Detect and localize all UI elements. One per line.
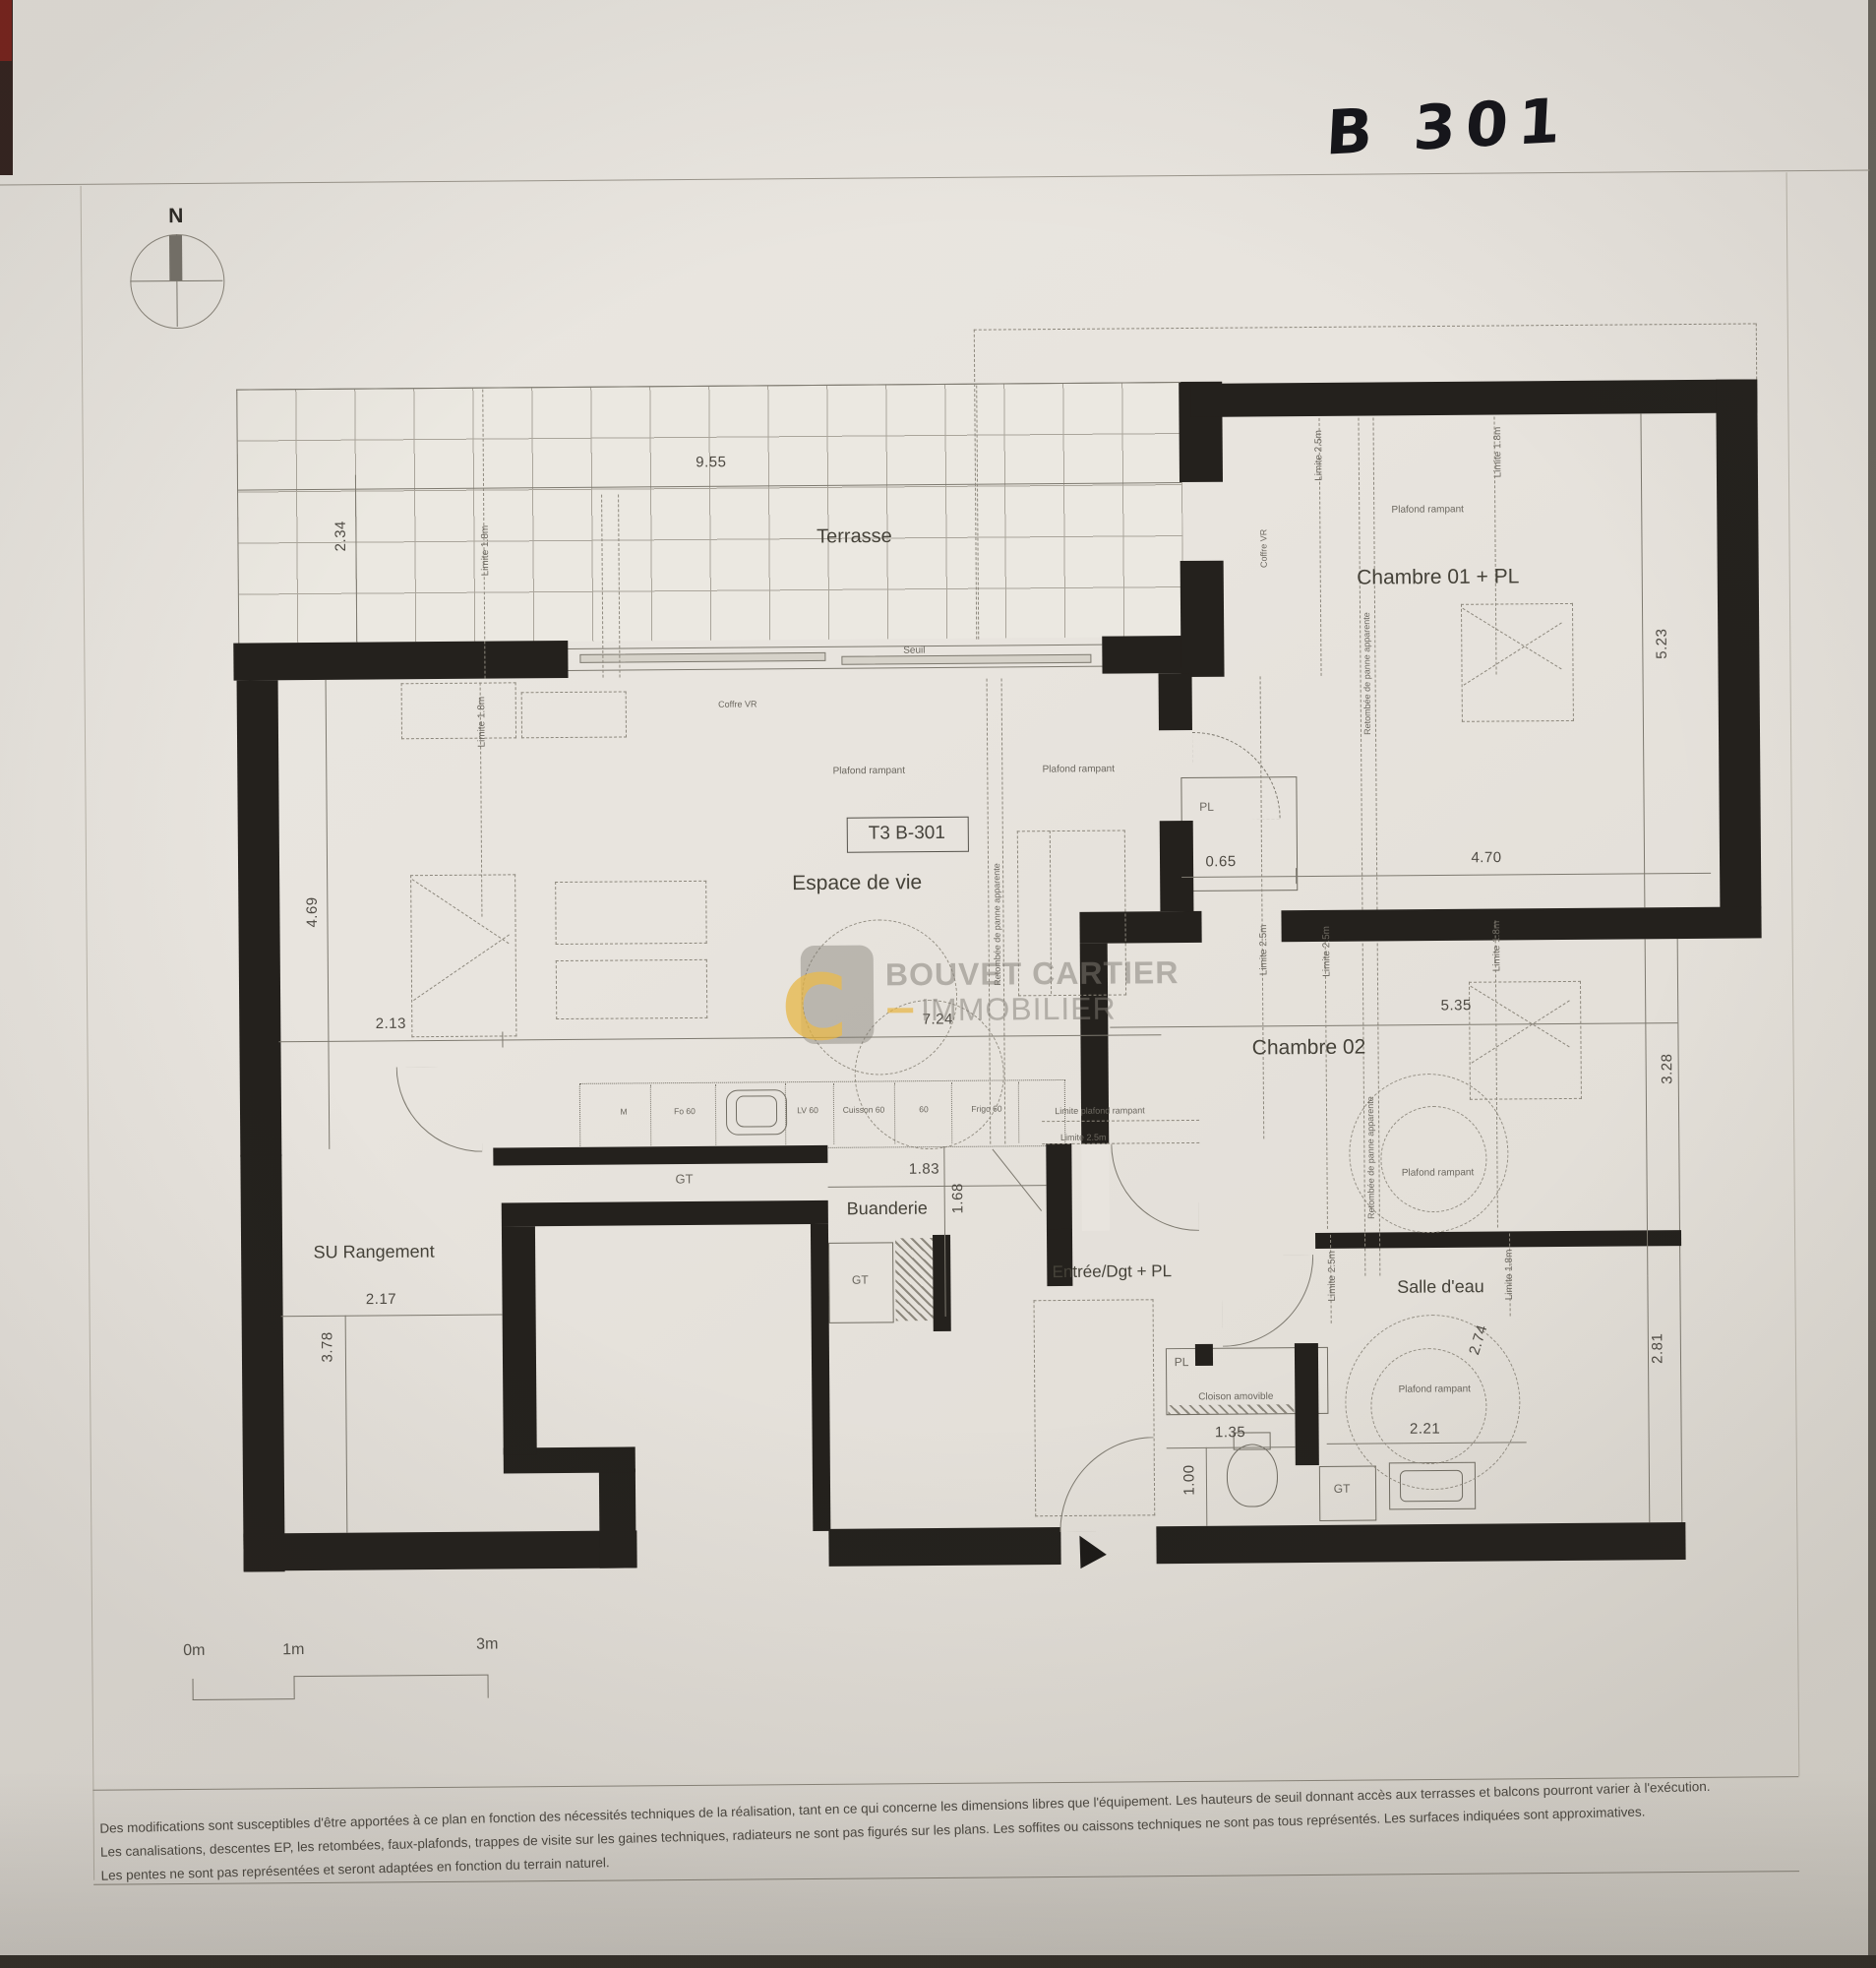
dimension-line — [1110, 1022, 1677, 1028]
scale-tick — [193, 1679, 194, 1700]
door-arc — [1111, 1143, 1199, 1232]
kitchen-appliance-label: Fo 60 — [659, 1107, 710, 1117]
dimension-line — [1206, 1447, 1208, 1526]
wall-segment — [1295, 1343, 1319, 1465]
annotation-label: Plafond rampant — [1402, 1167, 1474, 1179]
kitchen-appliance-label: Cuisson 60 — [838, 1106, 889, 1116]
wall-segment — [828, 1527, 1060, 1567]
sliding-door-panel — [579, 652, 825, 663]
annotation-label: Limite 2.5m — [1313, 430, 1324, 481]
sheet-top-rule — [0, 170, 1870, 186]
sliding-door-track-top — [566, 645, 1102, 649]
door-arc — [1222, 1255, 1314, 1347]
annotation-label: Limite 2.5m — [1060, 1133, 1107, 1142]
annotation-label: Cloison amovible — [1198, 1391, 1273, 1403]
annotation-label: Limite 2.5m — [1258, 925, 1269, 976]
dimension-label: 2.21 — [1410, 1421, 1440, 1438]
scale-0m: 0m — [183, 1642, 205, 1660]
compass-needle — [169, 235, 182, 280]
furniture-outline — [556, 959, 707, 1019]
construction-dashed-line — [1325, 942, 1328, 1229]
skylight-outline — [401, 682, 516, 739]
plan-sheet: N — [0, 0, 1876, 1968]
dimension-label: 2.13 — [376, 1015, 406, 1032]
toilet-bowl — [1227, 1444, 1279, 1507]
wall-segment — [933, 1235, 951, 1331]
room-label: Espace de vie — [792, 871, 922, 895]
annotation-label: Coffre VR — [718, 699, 756, 708]
dimension-label: 2.34 — [333, 521, 349, 551]
dimension-label: 9.55 — [696, 454, 726, 470]
annotation-label: Limite 2.5m — [1327, 1251, 1338, 1302]
annotation-label: GT — [1334, 1482, 1351, 1496]
dimension-label: 1.35 — [1215, 1424, 1245, 1441]
annotation-label: PL — [1199, 800, 1214, 814]
room-label: Salle d'eau — [1397, 1276, 1484, 1298]
dimension-label: 2.17 — [366, 1291, 396, 1308]
dimension-line — [326, 680, 331, 1149]
annotation-label: Plafond rampant — [833, 766, 905, 777]
compass-north-label: N — [168, 205, 183, 228]
room-label: Buanderie — [847, 1199, 928, 1220]
dimension-label: 3.78 — [319, 1331, 335, 1362]
removable-partition-hatch — [1168, 1404, 1294, 1414]
dimension-label: 3.28 — [1659, 1054, 1675, 1084]
terrace-tile-grid — [236, 382, 1183, 645]
dimension-line — [1296, 868, 1297, 884]
door-arc — [396, 1067, 483, 1153]
sliding-door-panel — [841, 654, 1091, 665]
photographed-floor-plan-sheet: B 301 N — [0, 0, 1876, 1968]
dimension-label: 4.70 — [1471, 849, 1501, 866]
dimension-line — [828, 1185, 1047, 1188]
room-label: Terrasse — [817, 525, 892, 549]
wall-segment — [233, 641, 568, 681]
wall-segment — [1180, 561, 1225, 677]
table-outline — [410, 874, 516, 1037]
dimension-line — [1645, 939, 1649, 1275]
annotation-label: Plafond rampant — [1043, 764, 1115, 775]
floor-plan: TerrasseChambre 01 + PLEspace de vieCham… — [0, 0, 1868, 8]
wall-segment — [1190, 379, 1757, 417]
wall-segment — [493, 1145, 827, 1166]
wall-segment — [1156, 1522, 1685, 1564]
construction-dashed-line — [1372, 418, 1377, 910]
watermark-logo-c-icon: C — [781, 955, 848, 1062]
wall-segment — [1195, 1344, 1213, 1366]
room-label: Entrée/Dgt + PL — [1053, 1261, 1173, 1282]
dimension-label: 1.68 — [949, 1183, 966, 1213]
kitchen-appliance-label: 60 — [898, 1105, 949, 1115]
ceiling-slope-circle — [1370, 1348, 1487, 1465]
annotation-label: Limite 2.5m — [1321, 926, 1332, 977]
annotation-label: Retombée de panne apparente — [1365, 1096, 1376, 1219]
skylight-outline — [521, 691, 627, 738]
annotation-label: Retombée de panne apparente — [1362, 612, 1372, 735]
wall-segment — [502, 1200, 828, 1227]
laundry-hatch — [895, 1238, 934, 1321]
footer-disclaimer: Des modifications sont susceptibles d'êt… — [99, 1772, 1817, 1888]
room-label: SU Rangement — [314, 1242, 435, 1263]
dimension-label: 0.65 — [1205, 853, 1236, 870]
sheet-left-rule — [81, 186, 95, 1880]
construction-dashed-line — [1042, 1120, 1199, 1122]
entrance-arrow — [1066, 1528, 1107, 1568]
kitchen-appliance-label: LV 60 — [782, 1106, 833, 1116]
wall-segment — [240, 1154, 284, 1571]
wall-segment — [502, 1226, 537, 1454]
scale-seg-low — [193, 1698, 294, 1700]
annotation-label: PL — [1175, 1355, 1189, 1369]
bed-outline — [1461, 603, 1574, 722]
scale-tick — [294, 1676, 295, 1699]
wall-segment — [599, 1468, 636, 1568]
furniture-outline — [555, 881, 706, 945]
annotation-label: GT — [675, 1171, 693, 1186]
construction-dashed-line — [974, 323, 1756, 330]
room-label: Chambre 01 + PL — [1357, 565, 1519, 589]
annotation-label: GT — [852, 1273, 869, 1287]
annotation-label: Coffre VR — [1258, 529, 1268, 568]
scale-seg-high — [294, 1675, 488, 1678]
annotation-label: Limite plafond rampant — [1055, 1105, 1145, 1116]
watermark-subname: IMMOBILIER — [921, 991, 1117, 1029]
watermark-gold-dash — [887, 1008, 913, 1013]
scale-tick — [487, 1675, 488, 1698]
dimension-line — [281, 1314, 503, 1317]
watermark-name: BOUVET CARTIER — [885, 954, 1180, 993]
watermark: C BOUVET CARTIER IMMOBILIER — [783, 936, 1119, 1057]
scale-1m: 1m — [282, 1641, 304, 1659]
wall-segment — [1160, 821, 1194, 911]
annotation-label: Limite 1.8m — [476, 697, 487, 748]
wall-segment — [1315, 1230, 1681, 1249]
dimension-line — [1647, 1275, 1650, 1522]
dimension-line — [943, 1146, 945, 1317]
door-opening — [1081, 1144, 1110, 1231]
dimension-label: 1.00 — [1180, 1464, 1197, 1495]
door-leaf — [993, 1149, 1043, 1211]
dimension-line — [1167, 1446, 1296, 1448]
unit-tag-label: T3 B-301 — [869, 823, 945, 845]
wall-segment — [1716, 379, 1761, 908]
annotation-label: Limite 1.8m — [1492, 427, 1503, 478]
annotation-label: Plafond rampant — [1399, 1384, 1471, 1395]
scale-3m: 3m — [476, 1636, 498, 1654]
dimension-label: 4.69 — [304, 896, 321, 927]
wall-segment — [237, 680, 282, 1156]
annotation-label: Seuil — [903, 646, 925, 656]
dimension-label: 1.83 — [909, 1160, 939, 1177]
dimension-label: 5.35 — [1441, 997, 1472, 1014]
room-label: Chambre 02 — [1252, 1036, 1366, 1061]
annotation-label: Plafond rampant — [1391, 504, 1463, 516]
kitchen-appliance-label: Frigo 60 — [961, 1105, 1012, 1115]
ceiling-slope-circle — [1380, 1106, 1487, 1213]
wall-segment — [811, 1224, 830, 1531]
bed-outline — [1469, 981, 1582, 1100]
wall-segment — [1281, 906, 1761, 942]
dimension-line — [345, 1316, 348, 1533]
construction-dashed-line — [1756, 323, 1757, 379]
compass: N — [0, 0, 1868, 8]
annotation-label: Limite 1.8m — [1504, 1250, 1515, 1301]
dimension-label: 5.23 — [1654, 629, 1670, 659]
wall-segment — [1046, 1143, 1072, 1230]
dimension-line — [1640, 413, 1645, 907]
low-wall-line — [1676, 907, 1682, 1525]
sheet-right-rule — [1786, 172, 1800, 1776]
kitchen-appliance-label: M — [598, 1107, 649, 1117]
annotation-label: Limite 1.8m — [480, 525, 491, 577]
dimension-label: 2.81 — [1649, 1333, 1665, 1364]
wall-segment — [1159, 673, 1192, 730]
wall-segment — [243, 1530, 636, 1570]
scale-bar: 0m 1m 3m — [0, 0, 1868, 8]
sliding-door-track-bottom — [566, 666, 1102, 671]
construction-dashed-line — [1260, 676, 1265, 1138]
annotation-label: Limite 1.8m — [1491, 921, 1502, 972]
